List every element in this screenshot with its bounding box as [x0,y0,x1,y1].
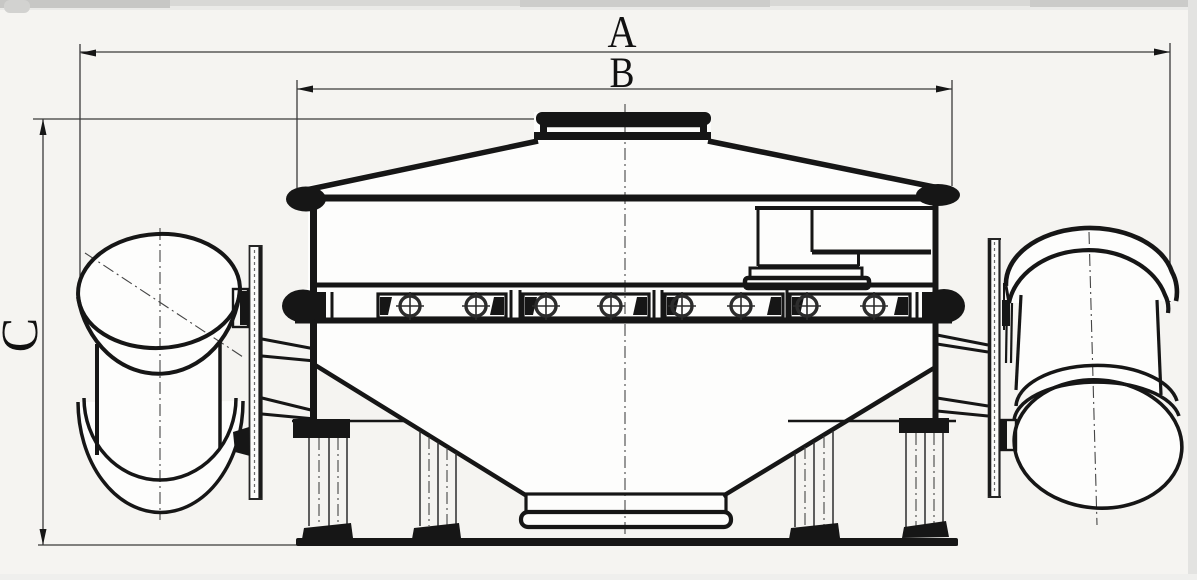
svg-text:C: C [0,318,49,353]
svg-text:B: B [610,50,635,97]
